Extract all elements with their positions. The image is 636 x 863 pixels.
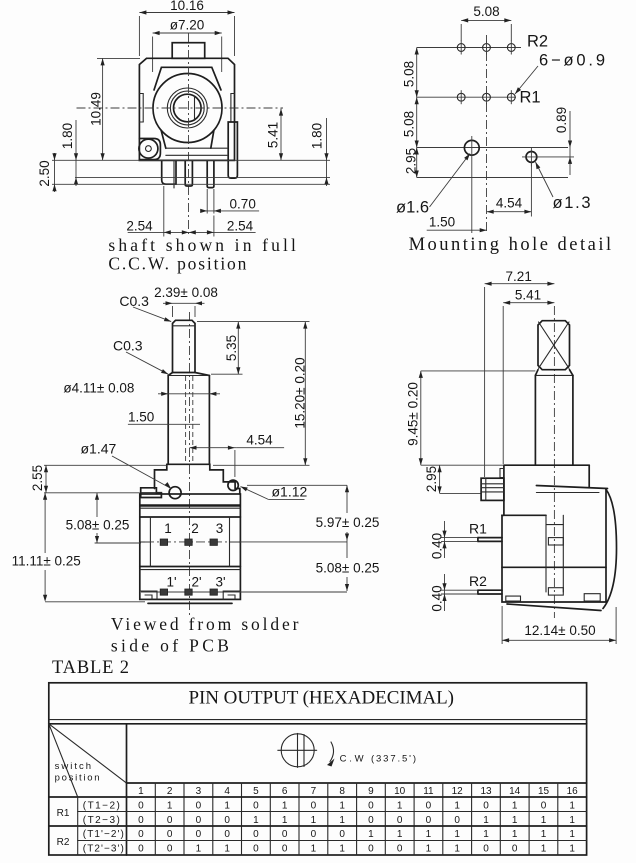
svg-text:0.89: 0.89 [554, 107, 569, 133]
svg-text:5: 5 [253, 786, 259, 797]
svg-text:5.08: 5.08 [473, 4, 499, 19]
svg-text:1: 1 [282, 801, 288, 812]
svg-text:1: 1 [512, 815, 518, 826]
svg-text:ø1.12: ø1.12 [272, 484, 308, 500]
svg-text:C0.3: C0.3 [113, 338, 143, 354]
svg-text:1: 1 [339, 801, 345, 812]
svg-text:1: 1 [454, 844, 460, 855]
svg-text:0: 0 [368, 815, 374, 826]
svg-text:2': 2' [191, 575, 201, 590]
svg-text:2.55: 2.55 [30, 465, 45, 491]
svg-text:0: 0 [196, 829, 202, 840]
svg-text:1: 1 [541, 844, 547, 855]
svg-text:R1: R1 [57, 808, 70, 819]
svg-text:5.41: 5.41 [515, 288, 541, 303]
svg-text:R1: R1 [520, 89, 541, 107]
svg-text:(T1−2): (T1−2) [83, 801, 120, 812]
svg-text:7.21: 7.21 [506, 269, 532, 284]
svg-text:2.54: 2.54 [126, 219, 153, 234]
svg-text:(337.5'): (337.5') [371, 754, 416, 765]
svg-text:R2: R2 [57, 837, 70, 848]
svg-text:1: 1 [483, 815, 489, 826]
svg-text:PIN OUTPUT (HEXADECIMAL): PIN OUTPUT (HEXADECIMAL) [189, 688, 456, 709]
svg-text:TABLE 2: TABLE 2 [52, 658, 130, 678]
svg-text:0: 0 [368, 844, 374, 855]
svg-text:shaft shown in full: shaft shown in full [108, 235, 297, 255]
svg-text:ø4.11± 0.08: ø4.11± 0.08 [63, 381, 134, 396]
svg-text:0: 0 [311, 801, 317, 812]
svg-text:1: 1 [397, 801, 403, 812]
svg-text:0: 0 [196, 815, 202, 826]
svg-text:1: 1 [368, 829, 374, 840]
svg-text:2.95: 2.95 [424, 466, 439, 492]
svg-text:2.50: 2.50 [37, 160, 52, 186]
svg-text:0: 0 [253, 829, 259, 840]
svg-text:5.08± 0.25: 5.08± 0.25 [66, 518, 130, 533]
svg-text:12: 12 [452, 786, 464, 797]
svg-text:C.C.W. position: C.C.W. position [108, 254, 247, 274]
svg-text:0: 0 [368, 801, 374, 812]
svg-text:1.80: 1.80 [310, 123, 325, 149]
svg-text:R1: R1 [469, 521, 487, 537]
svg-text:1: 1 [426, 844, 432, 855]
svg-text:C.W: C.W [340, 754, 364, 765]
svg-text:1: 1 [311, 815, 317, 826]
svg-text:0: 0 [282, 844, 288, 855]
svg-text:1: 1 [282, 815, 288, 826]
svg-text:10: 10 [394, 786, 406, 797]
svg-text:1: 1 [454, 829, 460, 840]
svg-text:1: 1 [483, 829, 489, 840]
svg-text:1: 1 [541, 829, 547, 840]
svg-text:0: 0 [224, 829, 230, 840]
svg-text:0: 0 [224, 815, 230, 826]
svg-text:2: 2 [191, 521, 199, 536]
svg-text:4.54: 4.54 [246, 433, 273, 448]
svg-text:10.49: 10.49 [89, 92, 104, 126]
svg-text:(T2'−3'): (T2'−3') [83, 844, 124, 855]
svg-text:Mounting hole detail: Mounting hole detail [409, 235, 612, 255]
svg-text:(T1'−2'): (T1'−2') [83, 829, 124, 840]
svg-text:1: 1 [138, 786, 144, 797]
svg-text:position: position [55, 773, 100, 784]
svg-text:0: 0 [253, 801, 259, 812]
svg-text:0: 0 [339, 829, 345, 840]
svg-text:11: 11 [423, 786, 434, 797]
svg-text:ø1.3: ø1.3 [553, 194, 591, 212]
svg-text:2.95: 2.95 [404, 148, 419, 174]
svg-text:1: 1 [454, 801, 460, 812]
svg-text:1: 1 [339, 844, 345, 855]
svg-text:5.08: 5.08 [402, 61, 417, 87]
svg-text:4.54: 4.54 [496, 196, 523, 211]
svg-text:ø1.6: ø1.6 [396, 199, 429, 217]
svg-text:6: 6 [282, 786, 288, 797]
svg-text:R2: R2 [527, 33, 548, 51]
svg-text:0: 0 [512, 844, 518, 855]
svg-text:13: 13 [480, 786, 492, 797]
svg-text:9: 9 [368, 786, 374, 797]
svg-text:3: 3 [196, 786, 202, 797]
svg-text:1: 1 [253, 815, 259, 826]
svg-text:0: 0 [196, 801, 202, 812]
svg-text:3: 3 [216, 521, 224, 536]
svg-text:1: 1 [569, 844, 575, 855]
svg-text:ø1.47: ø1.47 [81, 441, 117, 457]
svg-text:4: 4 [224, 786, 230, 797]
svg-text:5.08± 0.25: 5.08± 0.25 [316, 560, 380, 575]
svg-text:0: 0 [167, 829, 173, 840]
svg-text:switch: switch [55, 761, 92, 772]
svg-text:5.08: 5.08 [402, 111, 417, 137]
svg-text:1: 1 [196, 844, 202, 855]
svg-text:1': 1' [166, 575, 176, 590]
svg-text:11.11± 0.25: 11.11± 0.25 [12, 554, 81, 569]
svg-text:0: 0 [426, 815, 432, 826]
svg-text:C0.3: C0.3 [119, 293, 149, 309]
svg-text:(T2−3): (T2−3) [83, 815, 120, 826]
svg-text:1: 1 [426, 829, 432, 840]
svg-text:1: 1 [164, 521, 172, 536]
svg-text:0: 0 [282, 829, 288, 840]
svg-text:0: 0 [167, 844, 173, 855]
svg-text:0.40: 0.40 [430, 585, 445, 611]
svg-text:0: 0 [483, 801, 489, 812]
svg-text:3': 3' [215, 575, 225, 590]
svg-text:2.54: 2.54 [227, 219, 254, 234]
svg-text:1: 1 [339, 815, 345, 826]
svg-text:Viewed from solder: Viewed from solder [111, 614, 300, 634]
svg-text:15: 15 [538, 786, 550, 797]
svg-text:1.50: 1.50 [128, 410, 154, 425]
svg-text:0: 0 [138, 801, 144, 812]
svg-text:1: 1 [224, 844, 230, 855]
svg-text:0.40: 0.40 [430, 533, 445, 559]
svg-text:ø7.20: ø7.20 [170, 18, 205, 33]
svg-text:12.14± 0.50: 12.14± 0.50 [524, 623, 595, 638]
svg-text:0: 0 [483, 844, 489, 855]
svg-text:16: 16 [567, 786, 579, 797]
svg-text:0: 0 [167, 815, 173, 826]
svg-text:5.35: 5.35 [224, 335, 239, 361]
svg-text:14: 14 [509, 786, 521, 797]
svg-text:side of PCB: side of PCB [111, 636, 230, 656]
svg-text:0: 0 [253, 844, 259, 855]
svg-text:2.39± 0.08: 2.39± 0.08 [154, 285, 218, 300]
svg-text:6−ø0.9: 6−ø0.9 [539, 52, 605, 70]
svg-text:5.41: 5.41 [266, 122, 281, 148]
svg-text:0: 0 [138, 815, 144, 826]
svg-text:R2: R2 [469, 573, 487, 589]
svg-text:1: 1 [224, 801, 230, 812]
svg-text:8: 8 [339, 786, 345, 797]
svg-text:0: 0 [397, 815, 403, 826]
svg-text:2: 2 [167, 786, 173, 797]
svg-text:1: 1 [541, 815, 547, 826]
svg-text:15.20± 0.20: 15.20± 0.20 [293, 357, 308, 428]
svg-text:0: 0 [138, 829, 144, 840]
svg-text:1: 1 [569, 829, 575, 840]
svg-text:1: 1 [397, 829, 403, 840]
svg-text:9.45± 0.20: 9.45± 0.20 [406, 382, 421, 446]
svg-text:0: 0 [397, 844, 403, 855]
svg-text:1: 1 [569, 815, 575, 826]
svg-text:1.80: 1.80 [60, 123, 75, 149]
svg-text:7: 7 [311, 786, 317, 797]
svg-text:1.50: 1.50 [429, 215, 455, 230]
svg-text:0: 0 [541, 801, 547, 812]
svg-text:1: 1 [512, 801, 518, 812]
svg-text:0: 0 [138, 844, 144, 855]
svg-text:0.70: 0.70 [230, 197, 256, 212]
svg-text:0: 0 [454, 815, 460, 826]
svg-text:1: 1 [167, 801, 173, 812]
svg-text:1: 1 [512, 829, 518, 840]
svg-text:1: 1 [569, 801, 575, 812]
svg-text:1: 1 [311, 844, 317, 855]
svg-text:5.97± 0.25: 5.97± 0.25 [316, 515, 380, 530]
svg-text:10.16: 10.16 [170, 0, 204, 13]
svg-text:0: 0 [426, 801, 432, 812]
svg-text:0: 0 [311, 829, 317, 840]
